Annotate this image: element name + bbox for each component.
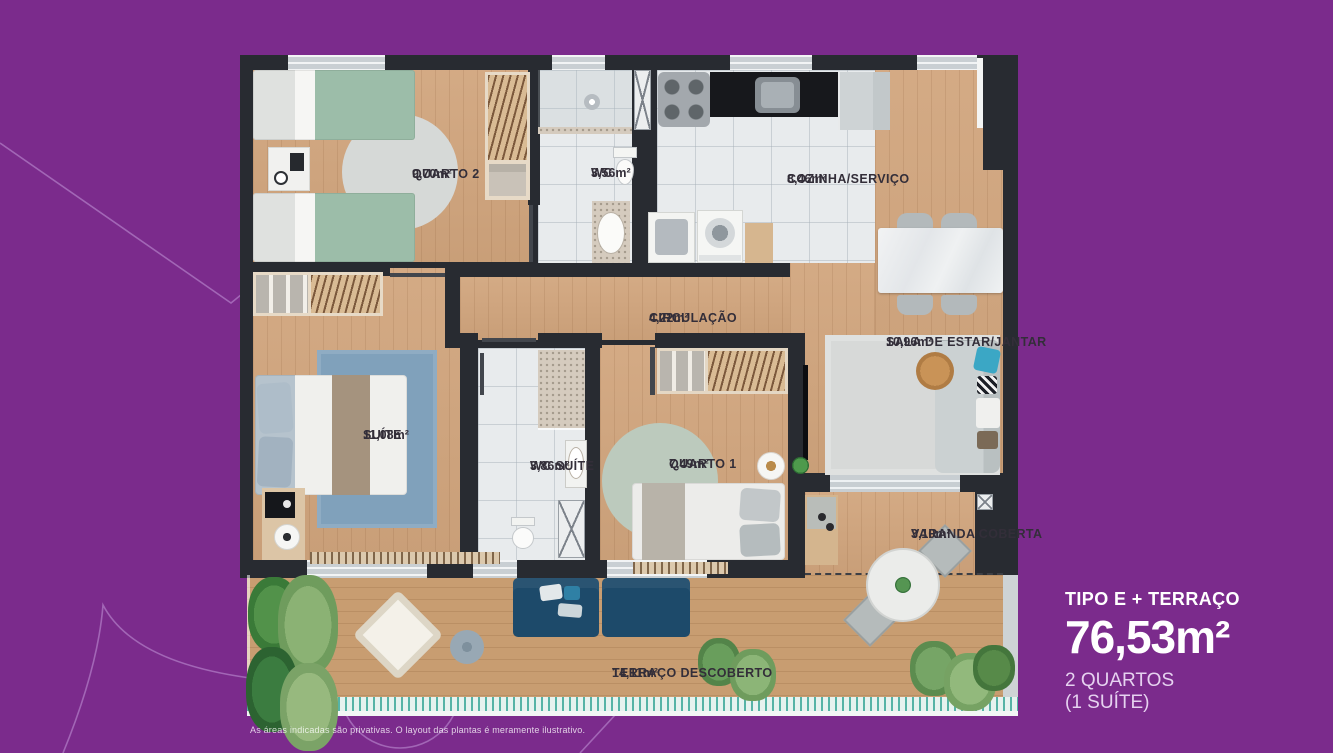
washer-door xyxy=(705,218,735,248)
dining-table xyxy=(878,228,1003,293)
shower-floor xyxy=(538,350,585,428)
wall xyxy=(975,473,1018,575)
folded-clothes xyxy=(256,275,308,313)
disclaimer-text: As áreas indicadas são privativas. O lay… xyxy=(250,725,585,735)
knob xyxy=(283,500,291,508)
wall xyxy=(445,262,460,348)
desk-object xyxy=(290,153,304,171)
terrace-railing xyxy=(247,697,1018,711)
room-area: 3,56m² xyxy=(591,166,631,182)
stove xyxy=(658,72,710,127)
unit-total-area: 76,53m² xyxy=(1065,614,1240,660)
terrace-side-rail xyxy=(1003,575,1018,716)
plant xyxy=(973,645,1015,691)
outdoor-table xyxy=(866,548,940,622)
window xyxy=(730,55,812,70)
door-leaf xyxy=(390,273,447,277)
wall xyxy=(983,55,1018,170)
wall xyxy=(960,473,975,492)
washer-controls xyxy=(699,255,741,261)
pillow xyxy=(256,382,293,434)
sofa-pillow-zigzag xyxy=(977,376,997,394)
wc-door-marker xyxy=(634,70,651,130)
pillow xyxy=(257,436,294,488)
suite-closet xyxy=(253,272,383,316)
pillow xyxy=(739,523,781,557)
room-area: 11,08m² xyxy=(363,428,409,444)
coffee-cup xyxy=(818,513,826,521)
fridge xyxy=(838,72,890,130)
unit-summary: TIPO E + TERRAÇO 76,53m² 2 QUARTOS (1 SU… xyxy=(1065,589,1240,714)
room-area: 8,46m² xyxy=(787,172,827,188)
folded-clothes xyxy=(660,351,705,391)
room-area: 3,10m² xyxy=(911,527,951,543)
pillow xyxy=(739,488,781,523)
page: QUARTO 2 9,70m² WC 3,56m² COZINHA/SERVIÇ… xyxy=(0,0,1333,753)
hall-floor xyxy=(460,277,790,340)
tank-basin xyxy=(655,219,688,255)
kitchen-sink xyxy=(755,77,800,113)
closet-drawers xyxy=(489,164,526,196)
window xyxy=(552,55,605,70)
laundry-counter xyxy=(745,223,773,263)
bed-runner xyxy=(642,483,685,560)
coffee-cup xyxy=(826,523,834,531)
desk-object xyxy=(265,492,295,518)
sofa-pillow xyxy=(539,584,563,602)
sofa-blanket xyxy=(976,398,1000,428)
hanging-clothes xyxy=(488,75,527,160)
toilet-tank xyxy=(613,147,637,158)
shower-head xyxy=(584,94,600,110)
quarto1-sideboard xyxy=(633,562,728,574)
wc-vanity xyxy=(592,201,630,263)
wall xyxy=(585,348,600,560)
shower-glass xyxy=(538,428,585,430)
quarto2-bed xyxy=(253,70,415,140)
quarto1-wardrobe xyxy=(657,348,788,394)
laundry-tank xyxy=(648,212,695,263)
coffee-table xyxy=(916,352,954,390)
shower-sill xyxy=(538,127,632,134)
unit-bedrooms: 2 QUARTOS xyxy=(1065,670,1240,692)
toilet xyxy=(512,527,534,549)
hanging-clothes xyxy=(708,351,785,391)
window xyxy=(917,55,977,70)
wall xyxy=(592,263,773,277)
quarto1-bed xyxy=(632,483,785,560)
quarto1-nightstand xyxy=(757,452,785,480)
floor-plan: QUARTO 2 9,70m² WC 3,56m² COZINHA/SERVIÇ… xyxy=(240,55,1018,716)
plant xyxy=(280,663,338,751)
door-leaf xyxy=(480,353,484,395)
room-area: 10,96m² xyxy=(886,335,933,351)
terrace-railing-base xyxy=(247,711,1018,716)
dining-chair xyxy=(897,295,933,315)
hanging-clothes xyxy=(311,275,380,313)
wall xyxy=(460,333,478,348)
door-leaf xyxy=(482,338,536,342)
wall xyxy=(538,333,602,348)
lamp xyxy=(274,171,288,185)
sliding-glass-door xyxy=(830,473,960,492)
quarto2-nightstand xyxy=(268,147,310,191)
stool xyxy=(274,524,300,550)
kitchen-counter xyxy=(710,72,838,117)
room-area: 4,22m² xyxy=(649,311,689,327)
room-area: 7,49m² xyxy=(669,457,709,473)
window xyxy=(288,55,385,70)
entry-door-leaf xyxy=(977,58,983,128)
room-area: 14,11m² xyxy=(612,666,658,682)
sofa-blanket xyxy=(557,603,582,618)
quarto2-closet xyxy=(485,72,530,200)
plant xyxy=(895,577,911,593)
room-area: 3,86m² xyxy=(530,459,570,475)
pouf xyxy=(450,630,484,664)
sink-basin xyxy=(597,212,625,254)
washing-machine xyxy=(697,210,743,263)
shaft-marker xyxy=(558,500,585,558)
toilet-tank xyxy=(511,517,535,526)
sofa-pillow xyxy=(564,586,580,600)
sink-basin xyxy=(761,82,794,108)
room-area: 9,70m² xyxy=(412,167,452,183)
quarto2-bed xyxy=(253,193,415,262)
shaft-marker xyxy=(977,494,993,510)
wall xyxy=(460,348,478,560)
wall xyxy=(655,333,790,348)
wall xyxy=(790,473,830,492)
door-leaf xyxy=(650,347,655,395)
tv-panel xyxy=(803,365,808,460)
dining-chair xyxy=(941,295,977,315)
sofa-pillow-brown xyxy=(977,431,998,449)
plant xyxy=(792,457,809,474)
door-leaf xyxy=(529,205,533,262)
unit-type-label: TIPO E + TERRAÇO xyxy=(1065,589,1240,610)
unit-suite-note: (1 SUÍTE) xyxy=(1065,692,1240,714)
suite-sideboard xyxy=(310,552,500,564)
terrace-sofa xyxy=(602,578,690,637)
